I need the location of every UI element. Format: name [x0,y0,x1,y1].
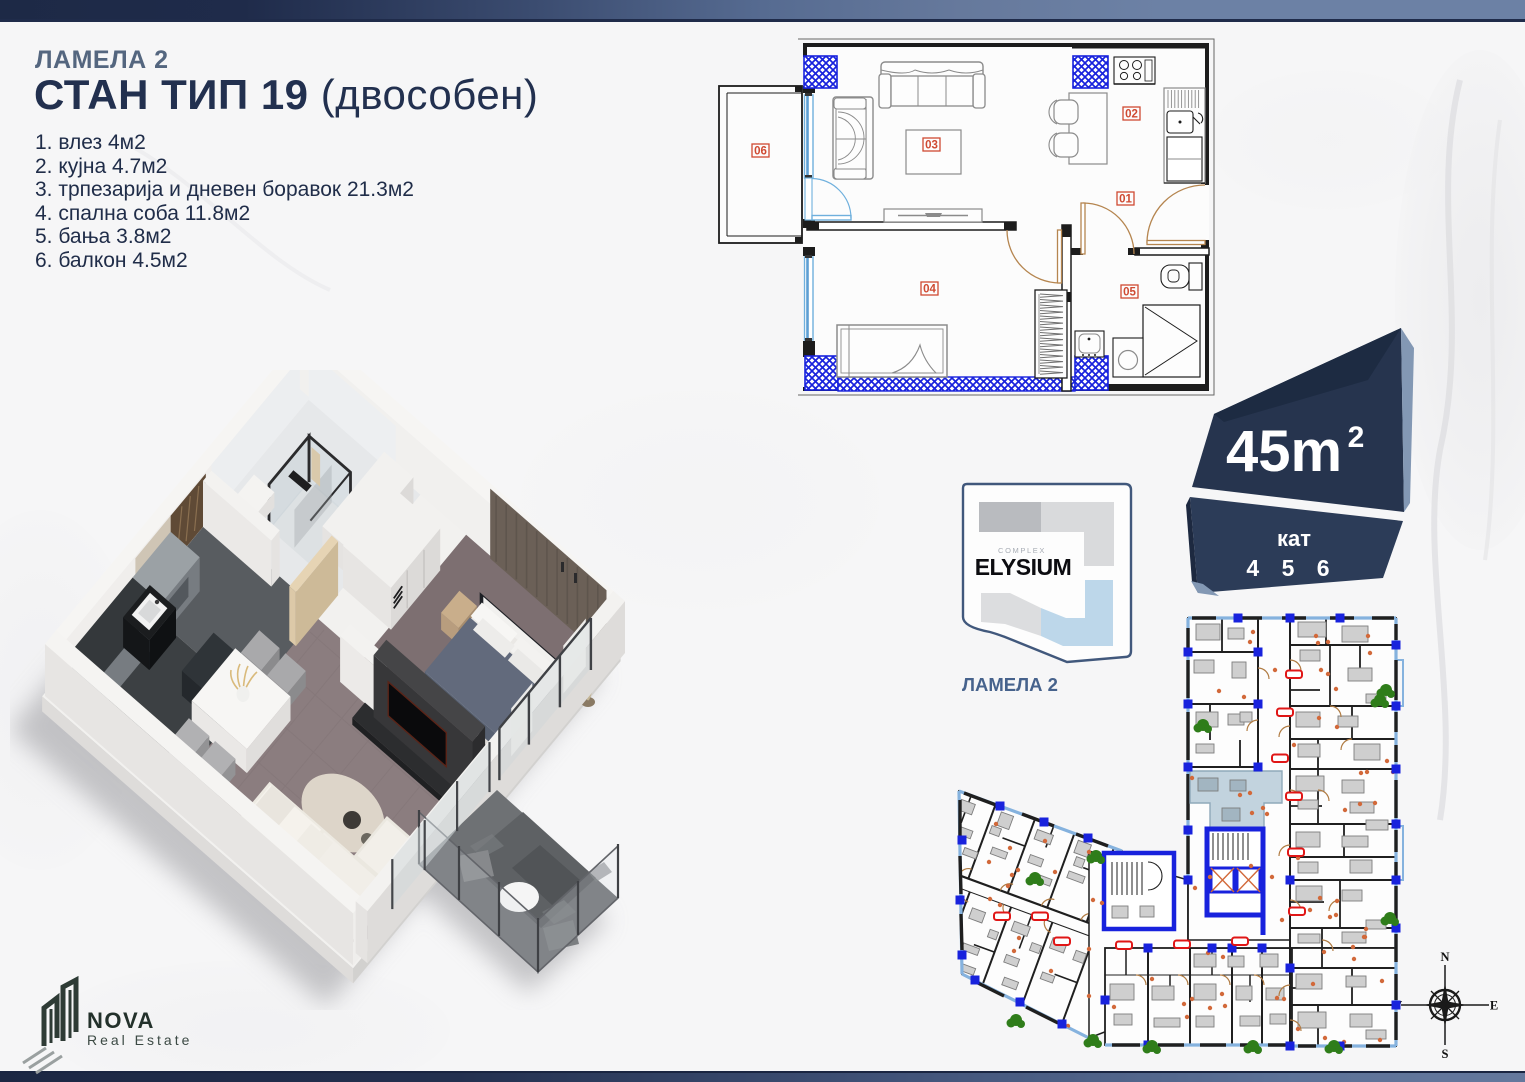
svg-text:S: S [1442,1047,1449,1060]
svg-text:03: 03 [925,140,938,152]
svg-text:Real Estate: Real Estate [87,1032,192,1048]
svg-text:04: 04 [923,284,936,296]
svg-text:45m: 45m [1226,419,1342,484]
svg-text:ELYSIUM: ELYSIUM [975,554,1072,580]
svg-text:05: 05 [1123,287,1136,299]
svg-text:4 5 6: 4 5 6 [1246,555,1337,581]
svg-text:06: 06 [754,146,767,158]
svg-text:2: 2 [1348,421,1365,454]
svg-text:E: E [1490,999,1498,1013]
svg-text:кат: кат [1277,526,1311,551]
svg-text:01: 01 [1119,194,1132,206]
svg-text:N: N [1440,950,1449,964]
svg-text:NOVA: NOVA [87,1008,155,1033]
svg-text:02: 02 [1125,109,1138,121]
